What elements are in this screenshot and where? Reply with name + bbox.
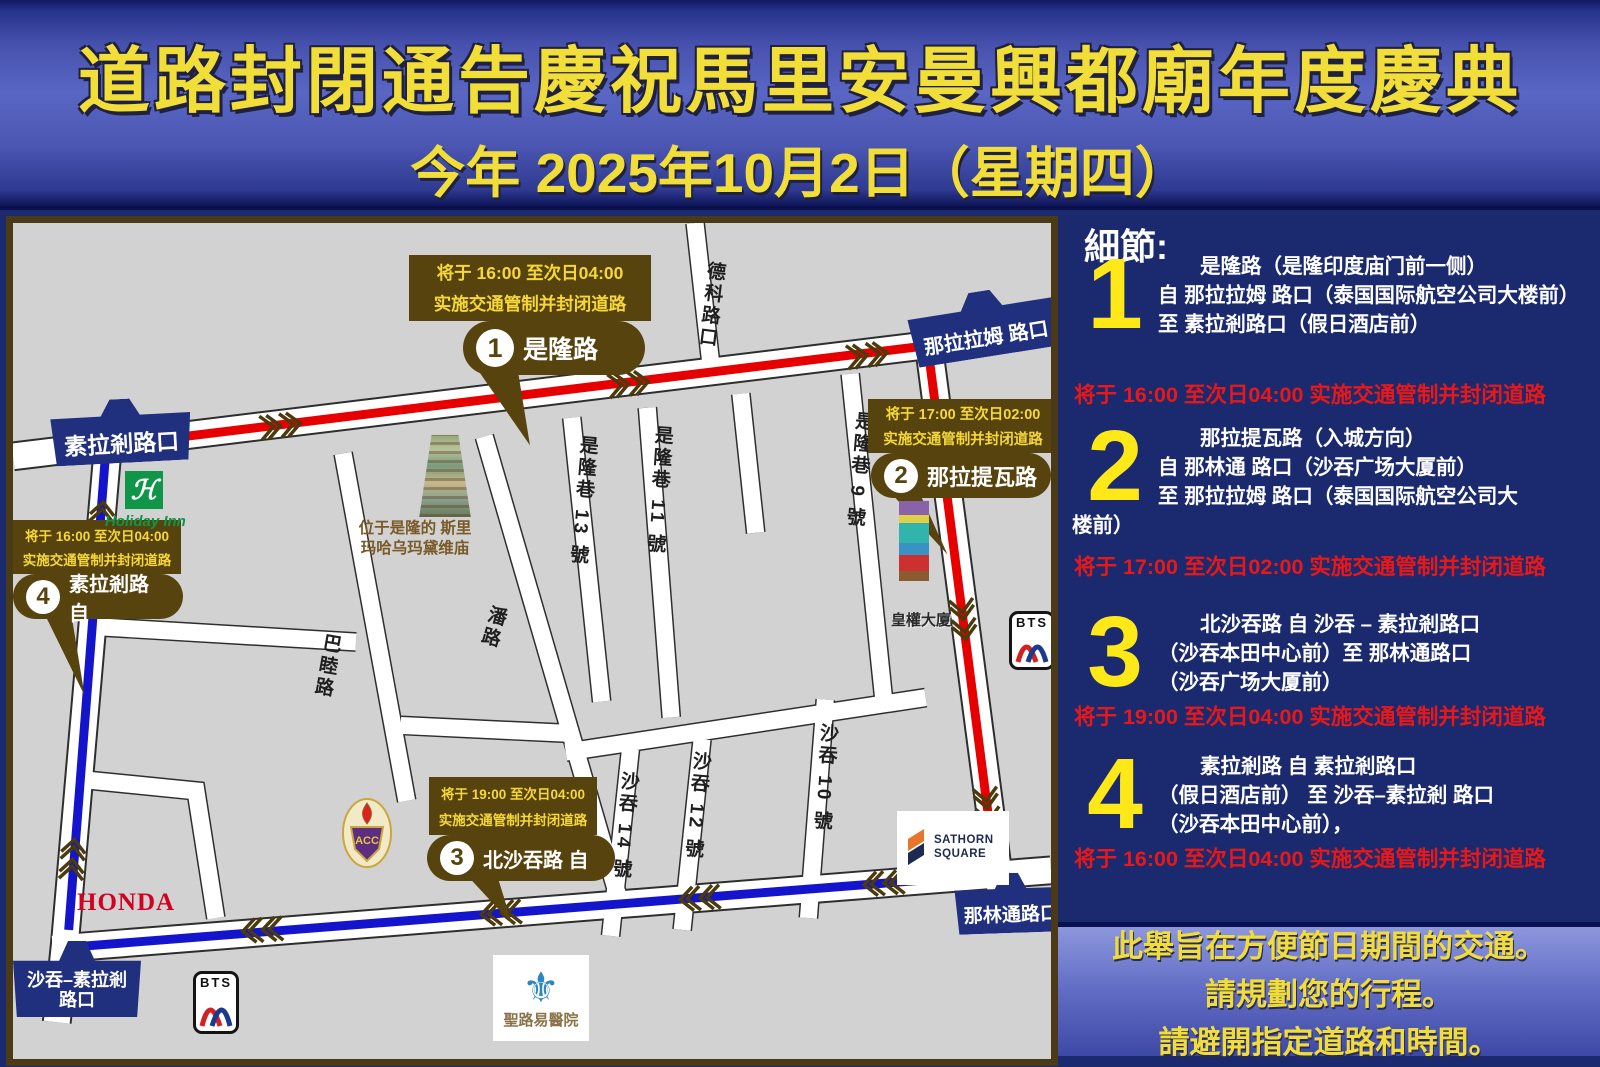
bts-ribbons-icon — [199, 989, 233, 1029]
detail-line: 素拉剎路 自 素拉剎路口 — [1158, 752, 1494, 781]
st-louis-hospital-logo: ⚜ 聖路易醫院 — [493, 955, 589, 1041]
road-callout-label: 北沙吞路 自 — [483, 844, 589, 873]
junction-sign-label: 路口 — [59, 990, 95, 1011]
closure-time-line: 实施交通管制并封闭道路 — [429, 809, 597, 829]
closure-callout-box-2: 将于 17:00 至次日02:00 实施交通管制并封闭道路 — [868, 399, 1058, 453]
detail-line: 北沙吞路 自 沙吞 – 素拉剎路口 — [1158, 610, 1480, 639]
sathorn-square-icon — [904, 827, 928, 869]
road-callout-bubble-2: 2 那拉提瓦路 — [871, 453, 1051, 498]
closure-time-line: 实施交通管制并封闭道路 — [13, 549, 181, 569]
notice-line: 此舉旨在方便節日期間的交通。 — [1058, 921, 1600, 966]
closure-time-2: 将于 17:00 至次日02:00 实施交通管制并封闭道路 — [1074, 550, 1546, 581]
detail-line: 至 那拉拉姆 路口（泰国国际航空公司大 — [1158, 482, 1518, 511]
number-badge: 2 — [884, 459, 918, 493]
number-badge: 4 — [26, 580, 60, 614]
bts-logo: BTS — [1009, 611, 1055, 670]
junction-sign-label: 素拉剎路口 — [64, 428, 180, 460]
number-badge: 3 — [440, 841, 474, 875]
road-callout-label: 那拉提瓦路 — [927, 460, 1037, 492]
detail-number: 1 — [1072, 250, 1158, 339]
road-closure-poster: 道路封閉通告慶祝馬里安曼興都廟年度慶典 今年 2025年10月2日（星期四） — [0, 0, 1600, 1067]
detail-line: （沙吞本田中心前）至 那林通路口 — [1158, 639, 1480, 668]
closure-callout-box-3: 将于 19:00 至次日04:00 实施交通管制并封闭道路 — [429, 777, 597, 835]
detail-line: （沙吞本田中心前）， — [1158, 810, 1494, 839]
temple-label-line: 玛哈乌玛黛维庙 — [345, 539, 485, 559]
bts-ribbons-icon — [1015, 629, 1049, 665]
bts-logo-bottom: BTS — [193, 971, 239, 1034]
holiday-inn-icon: ℋ — [125, 471, 163, 509]
detail-line: 那拉提瓦路（入城方向） — [1158, 424, 1518, 453]
detail-line: 至 素拉剎路口（假日酒店前） — [1158, 310, 1579, 339]
closure-time-1: 将于 16:00 至次日04:00 实施交通管制并封闭道路 — [1074, 378, 1546, 409]
notice-line: 請規劃您的行程。 — [1058, 969, 1600, 1014]
road-callout-bubble-3: 3 北沙吞路 自 — [427, 835, 615, 881]
detail-item-4: 4 素拉剎路 自 素拉剎路口 （假日酒店前） 至 沙吞–素拉剎 路口 （沙吞本田… — [1072, 750, 1494, 839]
holiday-inn-label: Holiday Inn — [105, 513, 186, 530]
road-callout-label: 素拉剎路 自 — [69, 568, 170, 626]
sathorn-square-label-line: SQUARE — [934, 848, 994, 862]
temple-label-line: 位于是隆的 斯里 — [345, 519, 485, 539]
details-panel: 細節: 1 是隆路（是隆印度庙门前一侧） 自 那拉拉姆 路口（泰国国际航空公司大… — [1058, 210, 1600, 922]
number-badge: 1 — [476, 329, 514, 367]
temple-label: 位于是隆的 斯里 玛哈乌玛黛维庙 — [345, 519, 485, 559]
bts-logo-text: BTS — [200, 976, 232, 989]
notice-line: 請避開指定道路和時間。 — [1058, 1017, 1600, 1062]
acc-crest-icon: ACC — [341, 797, 393, 869]
sathorn-square-label-line: SATHORN — [934, 834, 994, 848]
top-banner: 道路封閉通告慶祝馬里安曼興都廟年度慶典 今年 2025年10月2日（星期四） — [0, 0, 1600, 210]
closure-time-line: 将于 17:00 至次日02:00 — [868, 403, 1058, 424]
detail-line: 自 那林通 路口（沙吞广场大厦前） — [1158, 453, 1518, 482]
closure-callout-box-1: 将于 16:00 至次日04:00 实施交通管制并封闭道路 — [409, 255, 651, 321]
road-callout-bubble-1: 1 是隆路 — [463, 321, 645, 375]
honda-label: HONDA — [77, 889, 175, 917]
junction-sign-label: 那林通路口 — [964, 903, 1058, 928]
closure-time-line: 将于 19:00 至次日04:00 — [429, 783, 597, 803]
st-louis-label: 聖路易醫院 — [503, 1009, 578, 1030]
detail-number: 4 — [1072, 750, 1158, 839]
detail-number: 3 — [1072, 608, 1158, 697]
page-title: 道路封閉通告慶祝馬里安曼興都廟年度慶典 — [0, 22, 1600, 127]
junction-sign-label: 沙吞–素拉剎 — [27, 970, 127, 991]
mahanakhon-tower-image — [899, 501, 929, 581]
event-date-subtitle: 今年 2025年10月2日（星期四） — [0, 128, 1600, 208]
detail-line: （假日酒店前） 至 沙吞–素拉剎 路口 — [1158, 781, 1494, 810]
detail-item-1: 1 是隆路（是隆印度庙门前一侧） 自 那拉拉姆 路口（泰国国际航空公司大楼前） … — [1072, 250, 1579, 339]
tower-label: 皇權大廈 — [891, 609, 951, 630]
closure-time-line: 将于 16:00 至次日04:00 — [409, 260, 651, 285]
road-callout-bubble-4: 4 素拉剎路 自 — [13, 574, 183, 619]
detail-item-3: 3 北沙吞路 自 沙吞 – 素拉剎路口 （沙吞本田中心前）至 那林通路口 （沙吞… — [1072, 608, 1480, 697]
bts-logo-text: BTS — [1016, 616, 1048, 629]
detail-line: 楼前） — [1072, 511, 1518, 540]
sathorn-square-logo: SATHORN SQUARE — [897, 811, 1009, 885]
closure-time-4: 将于 16:00 至次日04:00 实施交通管制并封闭道路 — [1074, 842, 1546, 873]
closure-time-line: 实施交通管制并封闭道路 — [868, 428, 1058, 449]
map-panel: 德科路口 是隆巷 13 號 是隆巷 11 號 是隆巷 9 號 潘路 巴睦路 沙吞… — [6, 216, 1058, 1066]
detail-line: 自 那拉拉姆 路口（泰国国际航空公司大楼前） — [1158, 281, 1579, 310]
detail-line: （沙吞广场大厦前） — [1158, 668, 1480, 697]
closure-time-line: 实施交通管制并封闭道路 — [409, 291, 651, 316]
detail-item-2: 2 那拉提瓦路（入城方向） 自 那林通 路口（沙吞广场大厦前） 至 那拉拉姆 路… — [1072, 422, 1518, 540]
closure-time-3: 将于 19:00 至次日04:00 实施交通管制并封闭道路 — [1074, 700, 1546, 731]
acc-crest-text: ACC — [355, 835, 379, 847]
detail-line: 是隆路（是隆印度庙门前一侧） — [1158, 252, 1579, 281]
map-canvas: 德科路口 是隆巷 13 號 是隆巷 11 號 是隆巷 9 號 潘路 巴睦路 沙吞… — [13, 223, 1051, 1059]
notice-box: 此舉旨在方便節日期間的交通。 請規劃您的行程。 請避開指定道路和時間。 — [1058, 922, 1600, 1056]
road-callout-label: 是隆路 — [523, 330, 598, 366]
holiday-inn-h-glyph: ℋ — [131, 475, 158, 506]
fleur-de-lis-icon: ⚜ — [522, 967, 560, 1009]
